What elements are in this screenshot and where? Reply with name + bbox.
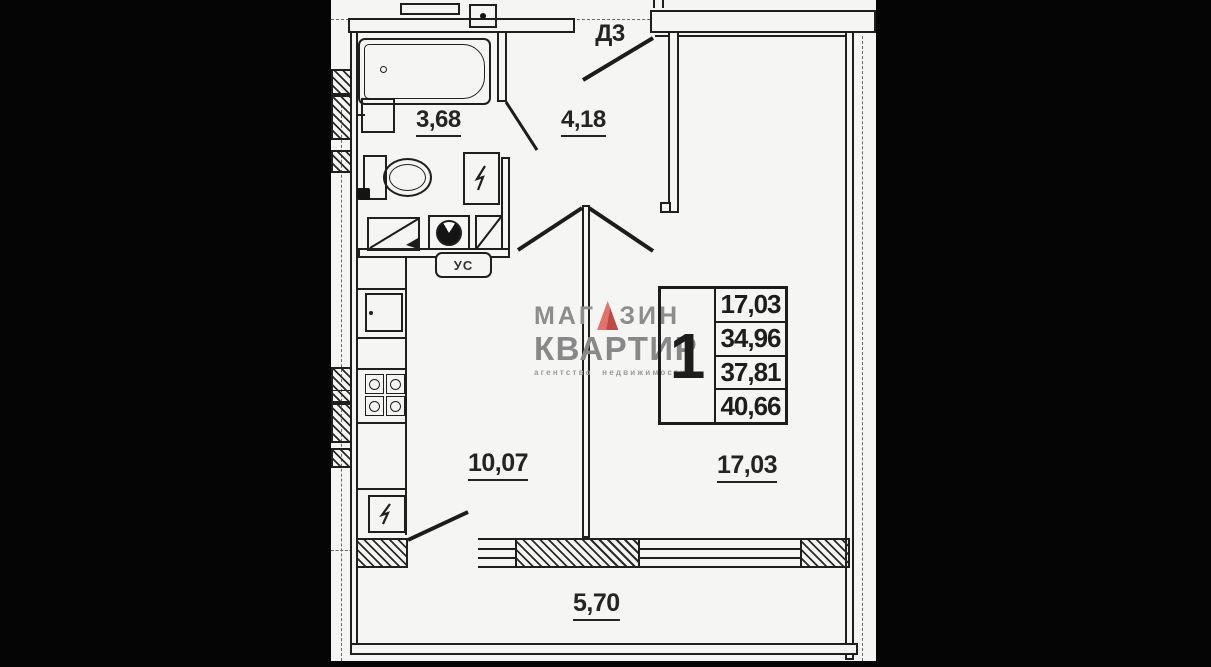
cabinet-diagonal xyxy=(477,217,501,248)
door-leaf-balcony xyxy=(408,512,468,540)
stamp-value-living: 17,03 xyxy=(716,289,785,323)
balcony-area-label: 5,70 xyxy=(573,589,620,618)
door-leaf-kitchen xyxy=(518,208,582,250)
stamp-value-2: 34,96 xyxy=(716,323,785,357)
stamp-value-3: 37,81 xyxy=(716,357,785,391)
room-area-value: 17,03 xyxy=(717,451,777,483)
kitchen-area-label: 10,07 xyxy=(468,449,528,478)
bathroom-area-value: 3,68 xyxy=(416,106,461,137)
bathroom-area-label: 3,68 xyxy=(416,106,461,134)
watermark-line1-left: МАГ xyxy=(534,304,596,329)
stamp-value-total: 40,66 xyxy=(716,390,785,422)
balcony-area-value: 5,70 xyxy=(573,589,620,621)
hallway-area-value: 4,18 xyxy=(561,106,606,137)
hallway-area-label: 4,18 xyxy=(561,106,606,134)
floorplan-canvas: УС Д3 3,68 4,18 10,07 17,03 5,70 1 17,03… xyxy=(331,0,876,661)
rooms-count-cell: 1 xyxy=(661,289,716,422)
door-label: Д3 xyxy=(580,20,640,48)
door-leaf-bathroom xyxy=(506,102,537,150)
washer-corner-mark xyxy=(406,238,418,249)
door-leaf-room xyxy=(589,208,653,251)
area-stamp-table: 1 17,03 34,96 37,81 40,66 xyxy=(658,286,788,425)
room-area-label: 17,03 xyxy=(717,451,777,480)
stamp-values-column: 17,03 34,96 37,81 40,66 xyxy=(716,289,785,422)
kitchen-area-value: 10,07 xyxy=(468,449,528,481)
logo-triangle-icon xyxy=(597,301,618,330)
